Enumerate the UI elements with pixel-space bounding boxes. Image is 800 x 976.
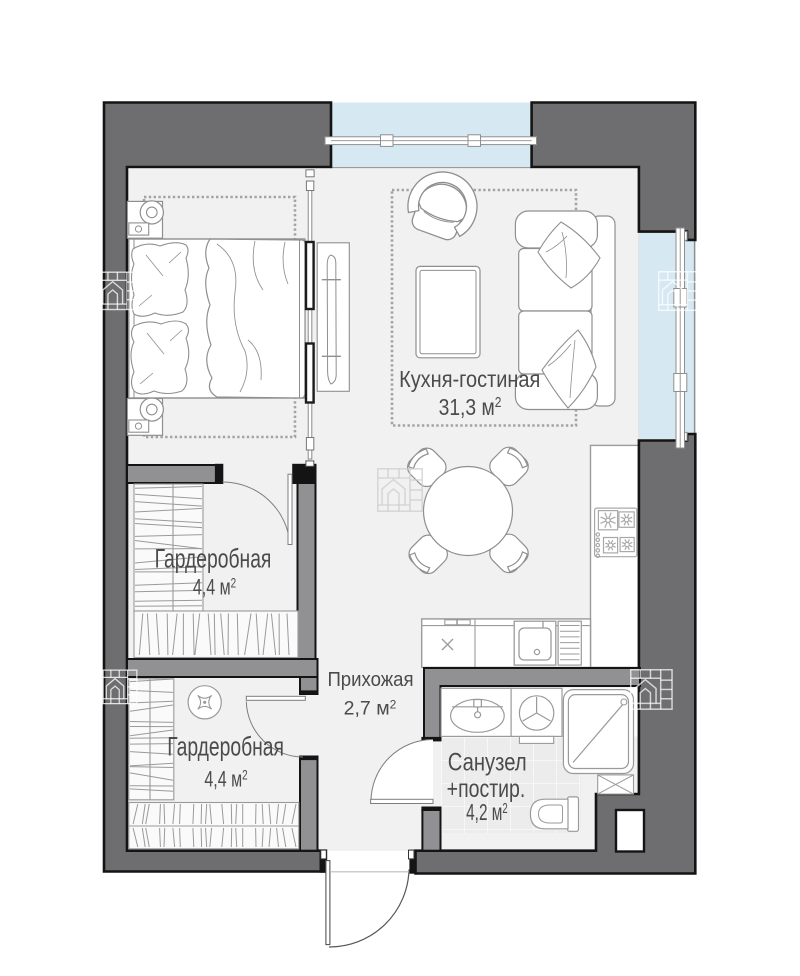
svg-text:4,4 м2: 4,4 м2 bbox=[204, 767, 248, 792]
svg-text:Санузел: Санузел bbox=[448, 749, 527, 776]
svg-text:+постир.: +постир. bbox=[447, 775, 526, 803]
svg-text:2,7 м2: 2,7 м2 bbox=[344, 697, 397, 719]
svg-text:4,4 м2: 4,4 м2 bbox=[193, 575, 237, 600]
svg-text:31,3 м2: 31,3 м2 bbox=[439, 394, 502, 420]
svg-text:4,2 м2: 4,2 м2 bbox=[466, 800, 508, 826]
svg-text:Кухня-гостиная: Кухня-гостиная bbox=[399, 366, 540, 393]
svg-text:Прихожая: Прихожая bbox=[327, 669, 413, 691]
svg-text:Гардеробная: Гардеробная bbox=[167, 731, 284, 761]
svg-text:Гардеробная: Гардеробная bbox=[155, 543, 272, 573]
